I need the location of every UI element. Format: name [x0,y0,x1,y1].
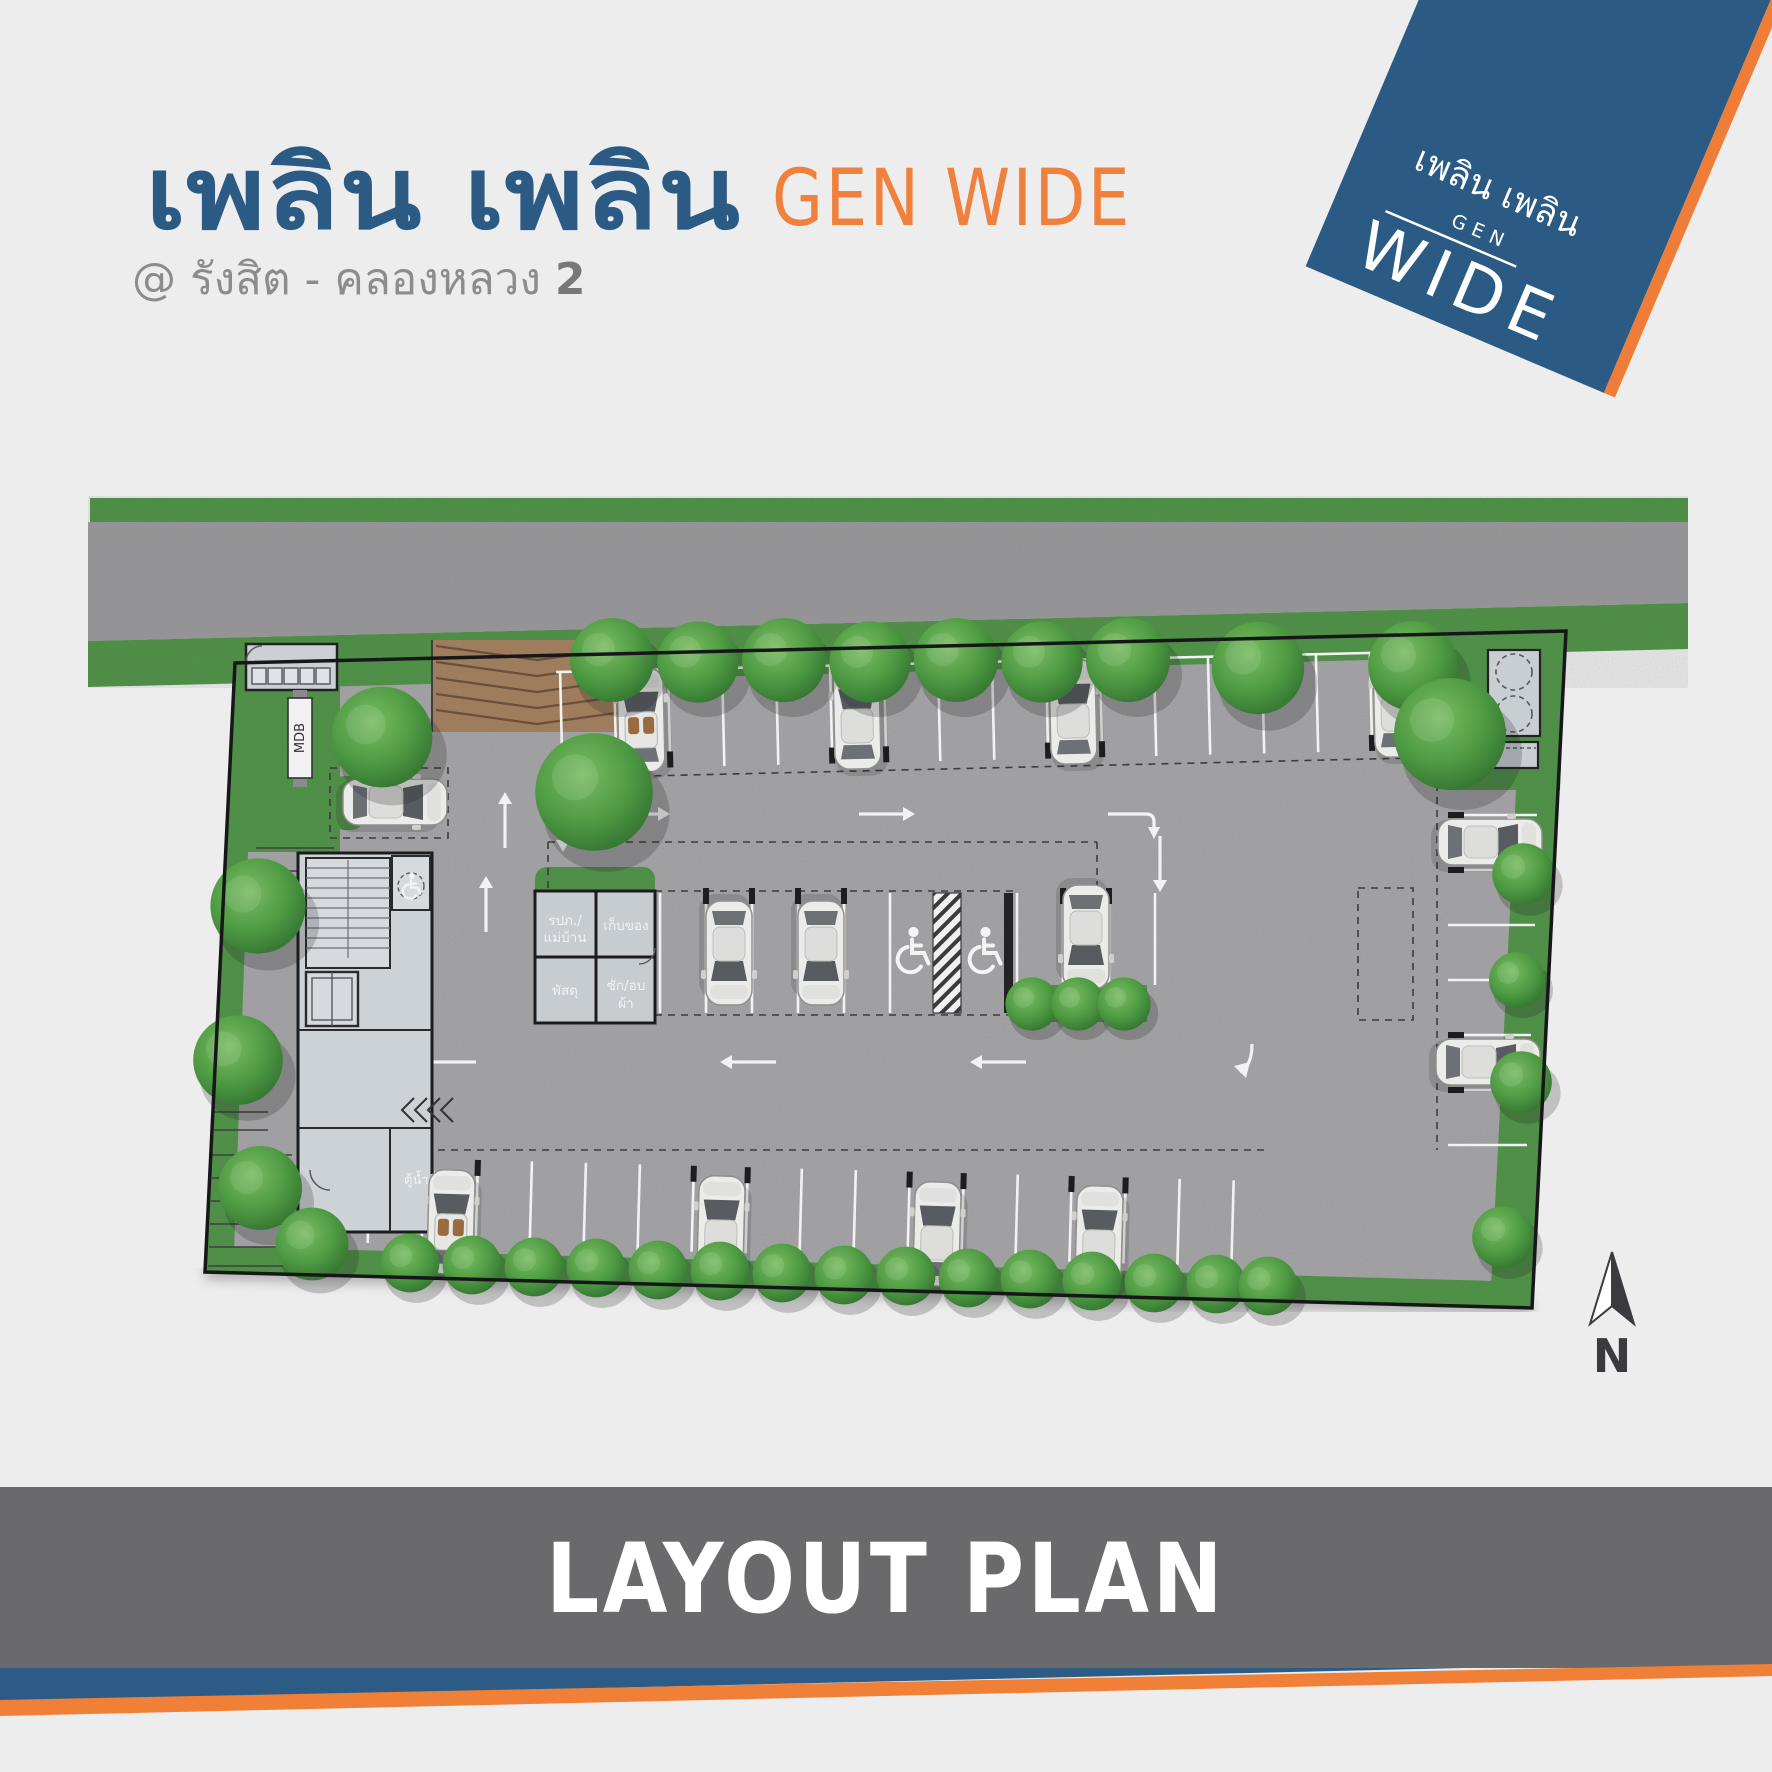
layout-plan-poster: เพลิน เพลิน GEN WIDE @ รังสิต - คลองหลวง… [0,0,1772,1772]
car [791,894,849,1005]
car [1056,878,1114,989]
service-block: รปภ./ แม่บ้าน เก็บของ พัสดุ ซัก/อบ ผ้า [535,891,655,1023]
guard-house [246,644,337,690]
room-label-parcel: พัสดุ [552,983,578,999]
page-title-en: GEN WIDE [772,154,1132,244]
room-label-laundry: ซัก/อบ [607,978,646,994]
subtitle-location: @ รังสิต - คลองหลวง [132,254,555,305]
room-label-laundry2: ผ้า [618,996,634,1012]
car [699,894,757,1005]
subtitle-number: 2 [555,254,586,305]
page-title: เพลิน เพลิน [145,135,740,252]
hatched-walkway [933,893,961,1013]
banner-caption: LAYOUT PLAN [546,1523,1226,1635]
north-label: N [1593,1329,1632,1383]
mdb-sign: MDB [288,690,312,787]
site-plan: MDB [88,496,1688,1383]
elevator [306,972,358,1026]
poster-canvas: เพลิน เพลิน GEN WIDE @ รังสิต - คลองหลวง… [0,0,1772,1772]
mdb-sign-label: MDB [293,723,308,753]
room-label-security: รปภ./ [548,913,582,929]
car-seats [625,712,658,749]
room-label-storage: เก็บของ [603,916,648,934]
room-label-security2: แม่บ้าน [544,930,587,946]
page-subtitle: @ รังสิต - คลองหลวง 2 [132,254,585,305]
